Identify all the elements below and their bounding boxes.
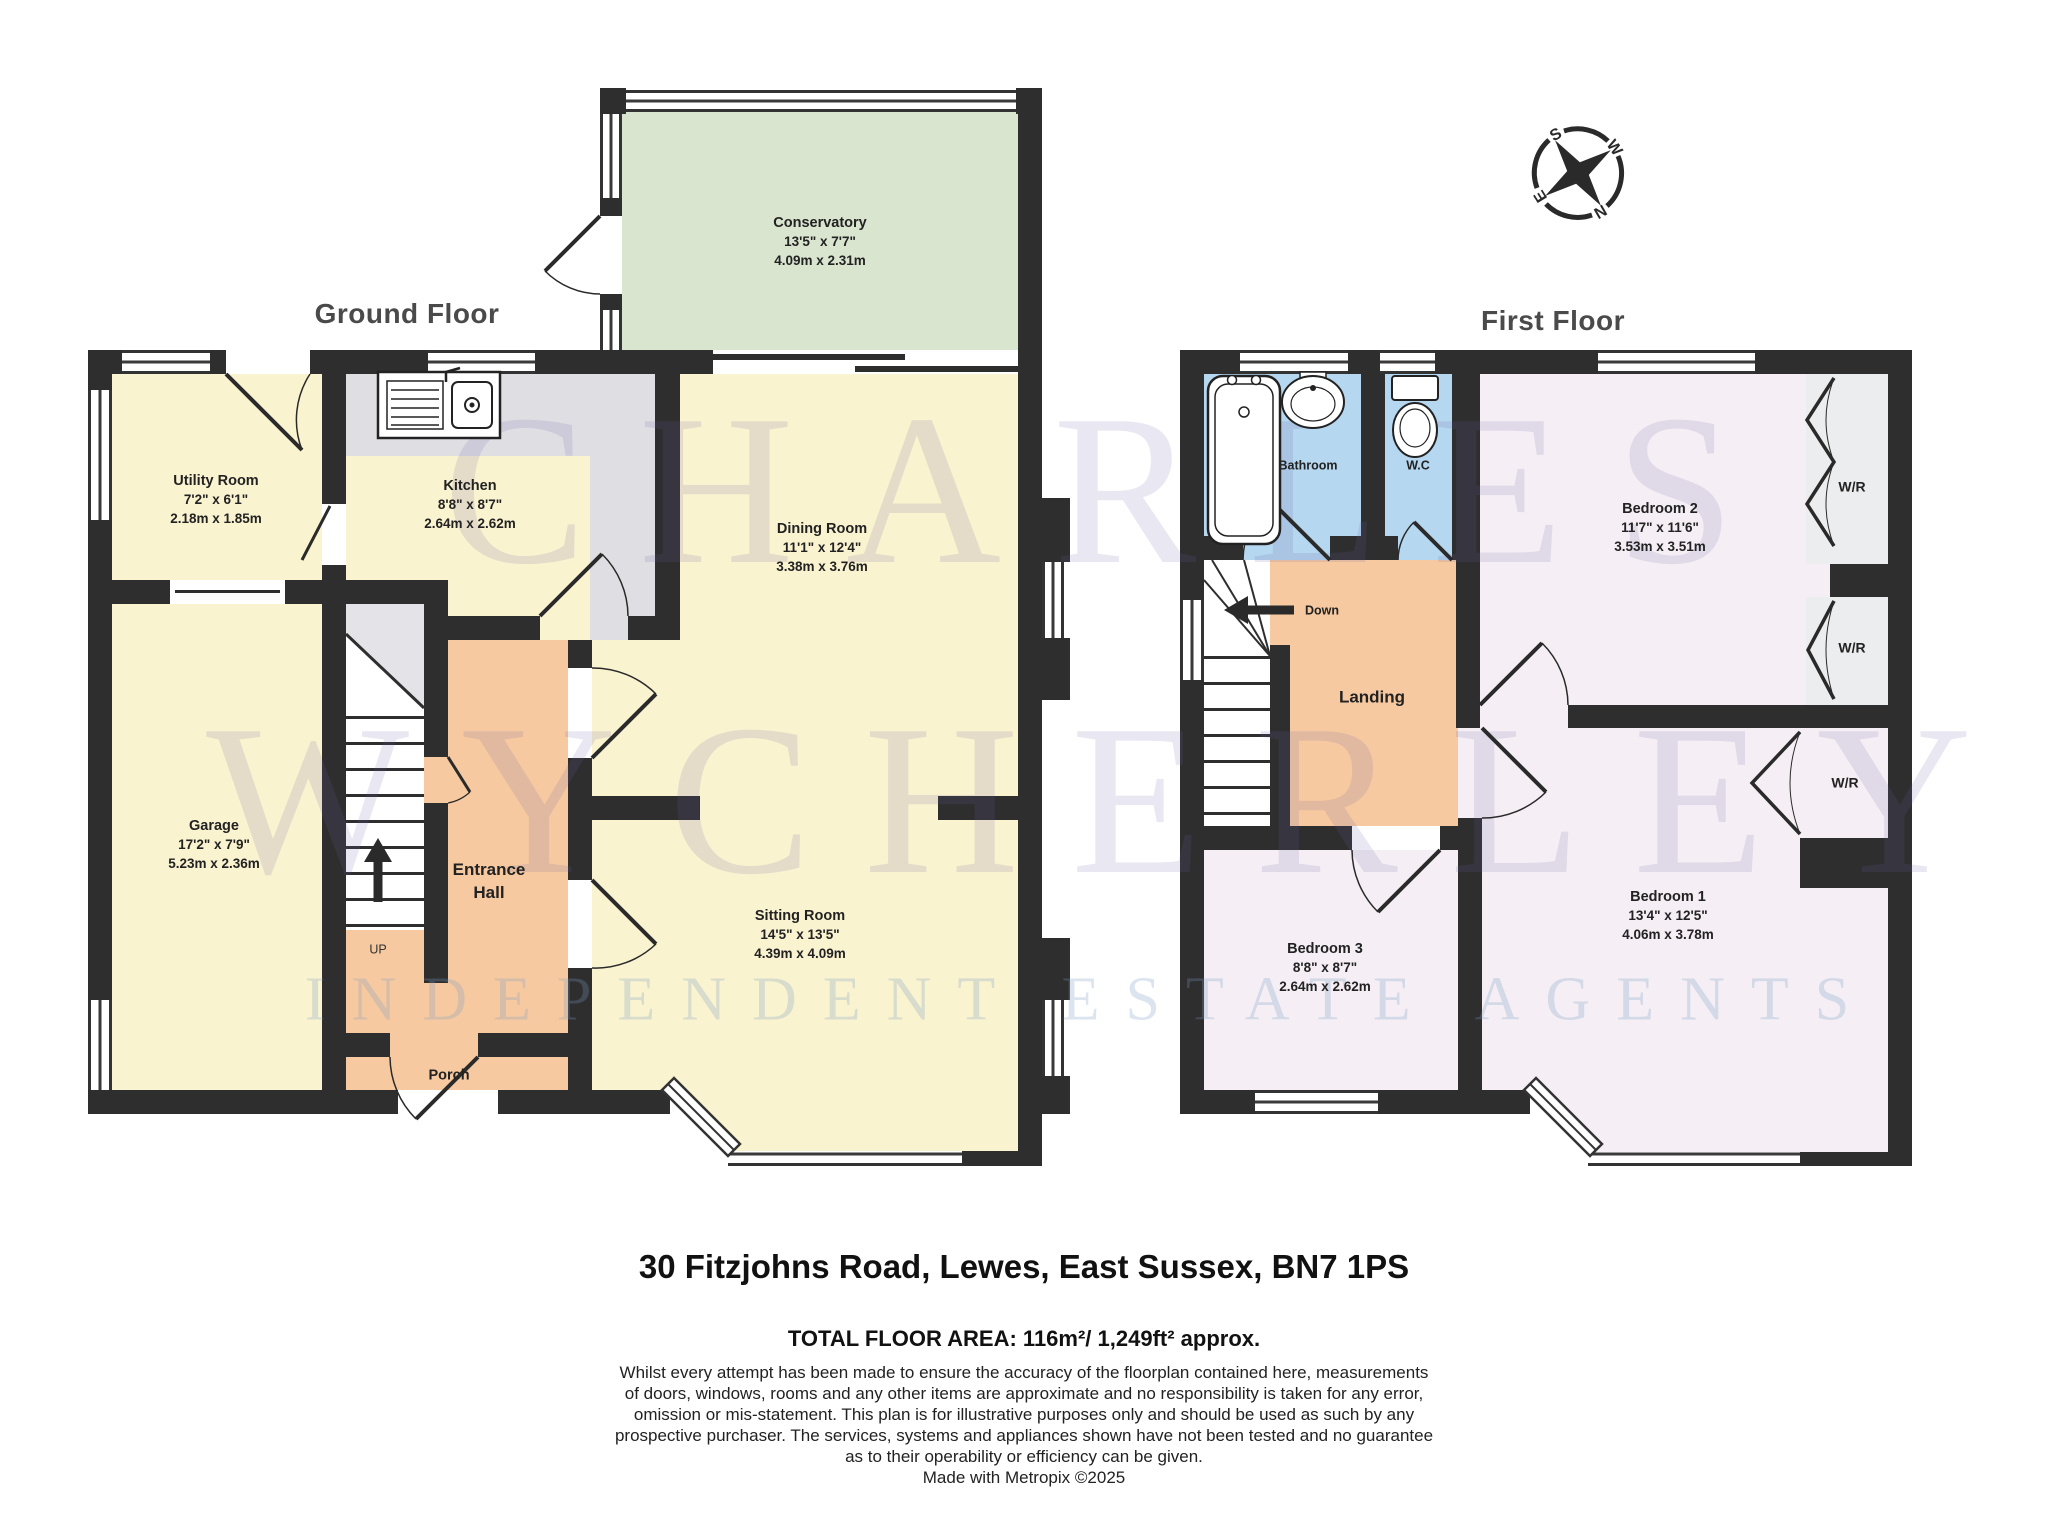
room-dim-metric: 2.18m x 1.85m <box>170 510 262 528</box>
room-dim-metric: 4.06m x 3.78m <box>1622 926 1714 944</box>
label-bathroom: Bathroom <box>1278 458 1337 475</box>
room-dim-imperial: 13'4" x 12'5" <box>1622 908 1714 926</box>
room-name: Utility Room <box>170 472 262 491</box>
room-name: Bedroom 2 <box>1614 500 1706 519</box>
label-wc: W.C <box>1406 458 1430 475</box>
room-name: Hall <box>453 882 526 905</box>
detail-overlay: S W N E <box>0 0 2048 1521</box>
label-down: Down <box>1305 603 1339 620</box>
first-floor-title: First Floor <box>1481 305 1625 337</box>
room-name: Dining Room <box>776 520 868 539</box>
room-dim-imperial: 8'8" x 8'7" <box>1279 960 1371 978</box>
property-address: 30 Fitzjohns Road, Lewes, East Sussex, B… <box>0 1248 2048 1286</box>
room-dim-imperial: 8'8" x 8'7" <box>424 497 516 515</box>
bay-window-diagonal <box>662 1078 1602 1156</box>
disclaimer-line: of doors, windows, rooms and any other i… <box>0 1384 2048 1404</box>
disclaimer-line: omission or mis-statement. This plan is … <box>0 1405 2048 1425</box>
label-kitchen: Kitchen 8'8" x 8'7" 2.64m x 2.62m <box>424 477 516 533</box>
room-name: Conservatory <box>773 214 866 233</box>
compass: S W N E <box>1531 125 1626 221</box>
compass-star <box>1545 140 1611 206</box>
understairs-void <box>346 604 424 708</box>
label-landing: Landing <box>1339 687 1405 710</box>
down-arrow <box>1224 596 1294 624</box>
label-utility: Utility Room 7'2" x 6'1" 2.18m x 1.85m <box>170 472 262 528</box>
label-bedroom3: Bedroom 3 8'8" x 8'7" 2.64m x 2.62m <box>1279 940 1371 996</box>
room-name: Kitchen <box>424 477 516 496</box>
label-entrance-hall: Entrance Hall <box>453 859 526 905</box>
room-dim-imperial: 11'7" x 11'6" <box>1614 520 1706 538</box>
compass-letter-e: E <box>1531 187 1551 205</box>
room-dim-metric: 3.38m x 3.76m <box>776 558 868 576</box>
label-garage: Garage 17'2" x 7'9" 5.23m x 2.36m <box>168 817 260 873</box>
label-wr-2: W/R <box>1838 639 1865 658</box>
room-dim-imperial: 14'5" x 13'5" <box>754 927 846 945</box>
metropix-credit: Made with Metropix ©2025 <box>0 1468 2048 1488</box>
room-dim-metric: 3.53m x 3.51m <box>1614 538 1706 556</box>
room-dim-imperial: 7'2" x 6'1" <box>170 492 262 510</box>
room-name: Bedroom 3 <box>1279 940 1371 959</box>
room-dim-imperial: 17'2" x 7'9" <box>168 837 260 855</box>
floorplan-page: CHARLES WYCHERLEY INDEPENDENT ESTATE AGE… <box>0 0 2048 1521</box>
room-dim-imperial: 11'1" x 12'4" <box>776 540 868 558</box>
room-dim-metric: 4.09m x 2.31m <box>773 252 866 270</box>
label-conservatory: Conservatory 13'5" x 7'7" 4.09m x 2.31m <box>773 214 866 270</box>
kitchen-sink <box>378 368 500 438</box>
room-name: Sitting Room <box>754 907 846 926</box>
label-sitting: Sitting Room 14'5" x 13'5" 4.39m x 4.09m <box>754 907 846 963</box>
room-dim-imperial: 13'5" x 7'7" <box>773 234 866 252</box>
label-wr-3: W/R <box>1831 774 1858 793</box>
room-dim-metric: 5.23m x 2.36m <box>168 855 260 873</box>
label-wr-1: W/R <box>1838 478 1865 497</box>
room-name: Garage <box>168 817 260 836</box>
basin <box>1282 372 1344 428</box>
label-porch: Porch <box>428 1066 469 1085</box>
label-bedroom1: Bedroom 1 13'4" x 12'5" 4.06m x 3.78m <box>1622 888 1714 944</box>
total-floor-area: TOTAL FLOOR AREA: 116m²/ 1,249ft² approx… <box>0 1326 2048 1352</box>
room-dim-metric: 2.64m x 2.62m <box>424 515 516 533</box>
wardrobe-bifold-doors <box>1752 378 1834 834</box>
room-dim-metric: 2.64m x 2.62m <box>1279 978 1371 996</box>
label-dining: Dining Room 11'1" x 12'4" 3.38m x 3.76m <box>776 520 868 576</box>
room-name: Entrance <box>453 859 526 882</box>
toilet <box>1392 376 1438 457</box>
room-name: Bedroom 1 <box>1622 888 1714 907</box>
label-bedroom2: Bedroom 2 11'7" x 11'6" 3.53m x 3.51m <box>1614 500 1706 556</box>
disclaimer-line: Whilst every attempt has been made to en… <box>0 1363 2048 1383</box>
bathtub <box>1208 376 1280 545</box>
room-dim-metric: 4.39m x 4.09m <box>754 945 846 963</box>
disclaimer-line: prospective purchaser. The services, sys… <box>0 1426 2048 1446</box>
disclaimer-line: as to their operability or efficiency ca… <box>0 1447 2048 1467</box>
label-up: UP <box>369 942 386 959</box>
up-arrow <box>364 838 392 902</box>
ground-floor-title: Ground Floor <box>315 298 500 330</box>
